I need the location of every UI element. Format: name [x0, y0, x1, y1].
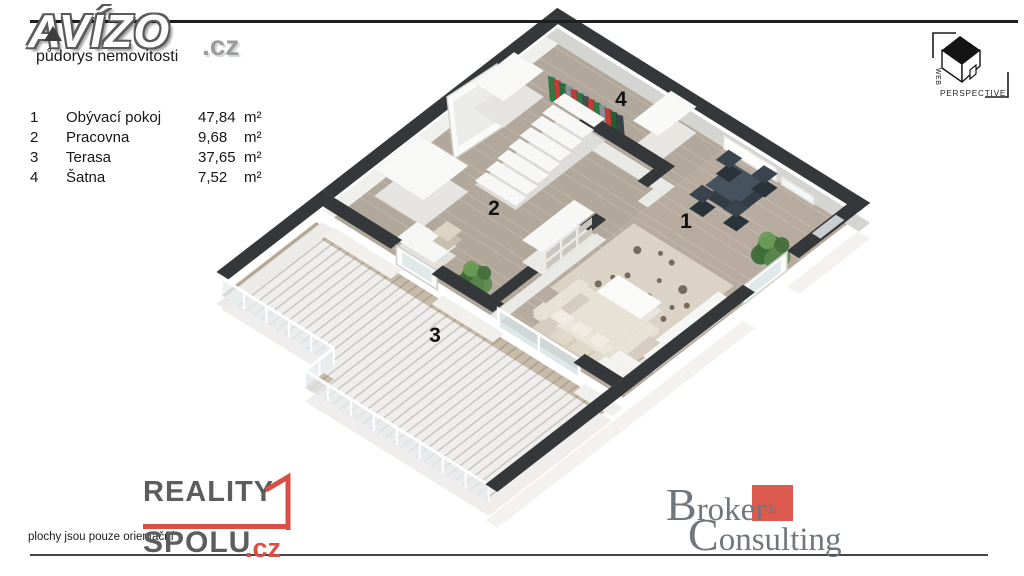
legend-room-number: 3 [30, 149, 66, 166]
perspective-label: PERSPECTIVE [940, 89, 1006, 98]
legend-room-area: 47,84 [198, 109, 244, 126]
legend-row: 2Pracovna9,68m² [30, 127, 268, 147]
web-vertical-label: WEB [934, 68, 941, 85]
realityspolu-cz: .cz [245, 533, 281, 564]
house-icon [942, 36, 980, 82]
svg-text:4: 4 [615, 88, 627, 111]
realityspolu-roof-icon [258, 468, 304, 534]
legend-area-unit: m² [244, 169, 268, 186]
legend-room-area: 7,52 [198, 169, 244, 186]
avizo-triangle-icon [44, 26, 62, 41]
consulting-initial: C [688, 509, 719, 560]
legend-area-unit: m² [244, 109, 268, 126]
legend-row: 4Šatna7,52m² [30, 167, 268, 187]
legend-area-unit: m² [244, 129, 268, 146]
flyer-subtitle: půdorys nemovitosti [36, 48, 178, 66]
svg-text:1: 1 [680, 210, 692, 233]
real-estate-flyer: 1234 AVÍZO .cz půdorys nemovitosti 1Obýv… [0, 0, 1024, 576]
legend-room-name: Terasa [66, 149, 198, 166]
consulting-wordmark: Consulting [688, 508, 842, 561]
legend-room-number: 2 [30, 129, 66, 146]
legend-room-area: 37,65 [198, 149, 244, 166]
legend-room-area: 9,68 [198, 129, 244, 146]
svg-text:3: 3 [429, 324, 441, 347]
legend-row: 1Obývací pokoj47,84m² [30, 107, 268, 127]
avizo-domain-suffix: .cz [202, 30, 239, 62]
realityspolu-reality: REALITY [143, 476, 274, 509]
legend-room-number: 1 [30, 109, 66, 126]
legend-area-unit: m² [244, 149, 268, 166]
legend-room-name: Šatna [66, 169, 198, 186]
legend-row: 3Terasa37,65m² [30, 147, 268, 167]
svg-text:2: 2 [488, 197, 500, 220]
realityspolu-spolu: SPOLU [143, 526, 251, 560]
consulting-rest: onsulting [719, 522, 842, 558]
legend-room-name: Pracovna [66, 129, 198, 146]
avizo-logo: AVÍZO .cz půdorys nemovitosti [26, 4, 286, 74]
legend-room-name: Obývací pokoj [66, 109, 198, 126]
room-legend: 1Obývací pokoj47,84m²2Pracovna9,68m²3Ter… [30, 107, 268, 187]
web-perspective-logo: WEB PERSPECTIVE [920, 26, 1020, 106]
legend-room-number: 4 [30, 169, 66, 186]
